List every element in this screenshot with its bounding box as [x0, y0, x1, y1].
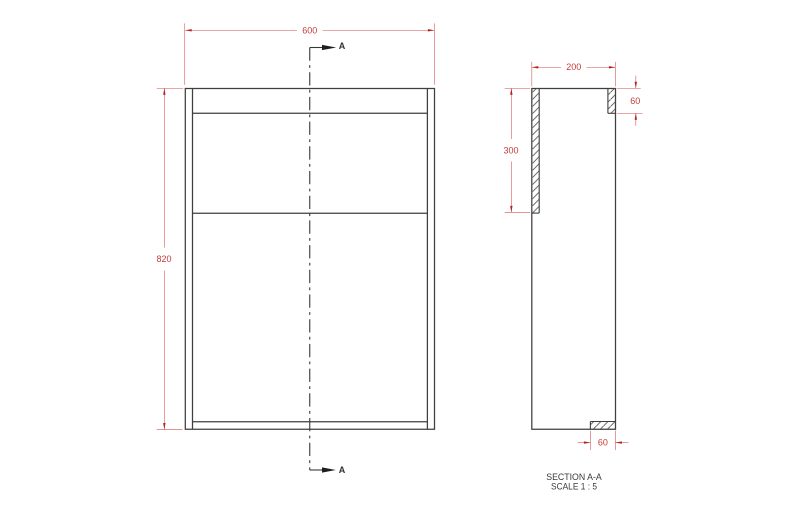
svg-text:A: A — [339, 41, 346, 51]
svg-text:300: 300 — [503, 145, 518, 155]
svg-text:60: 60 — [630, 96, 640, 106]
svg-text:SCALE 1 : 5: SCALE 1 : 5 — [551, 482, 597, 492]
svg-text:820: 820 — [156, 254, 171, 264]
svg-text:200: 200 — [566, 62, 581, 72]
svg-text:A: A — [339, 465, 346, 475]
svg-text:600: 600 — [302, 26, 317, 36]
svg-text:60: 60 — [598, 438, 608, 448]
